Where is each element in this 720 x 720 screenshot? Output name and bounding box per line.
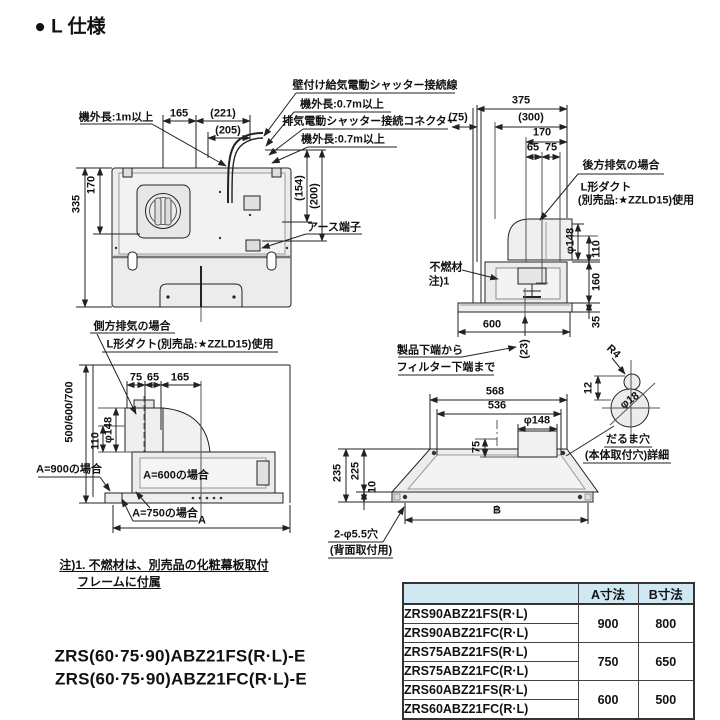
label-case-a900: A=900の場合 xyxy=(36,465,102,476)
callout-wall-supply-shutter: 壁付け給気電動シャッター接続線 xyxy=(293,81,458,92)
label-l-duct: L形ダクト xyxy=(581,183,632,194)
dim-205: (205) xyxy=(215,126,241,137)
dim-phi148-left: φ148 xyxy=(104,417,115,443)
b-value: 650 xyxy=(638,643,694,681)
dim-170-front: 170 xyxy=(87,176,98,194)
dim-A: A xyxy=(198,516,206,527)
page-title: ● L 仕様 xyxy=(34,18,105,37)
dim-568: 568 xyxy=(486,387,504,398)
table-header-row: A寸法 B寸法 xyxy=(403,583,694,604)
a-value: 750 xyxy=(578,643,638,681)
dim-110-left: 110 xyxy=(91,432,102,450)
label-note-ref: 注)1 xyxy=(429,277,450,288)
note-line2: フレームに付属 xyxy=(77,576,161,588)
model-cell: ZRS90ABZ21FC(R·L) xyxy=(403,624,578,643)
model-cell: ZRS75ABZ21FS(R·L) xyxy=(403,643,578,662)
model-cell: ZRS60ABZ21FS(R·L) xyxy=(403,681,578,700)
dim-35: 35 xyxy=(592,316,603,328)
label-side-l-duct: L形ダクト(別売品:★ZZLD15)使用 xyxy=(107,340,274,351)
model-number-fs: ZRS(60·75·90)ABZ21FS(R·L)-E xyxy=(55,648,306,665)
label-rear-mount: (背面取付用) xyxy=(330,546,392,557)
table-row: ZRS90ABZ21FS(R·L) 900 800 xyxy=(403,604,694,624)
dim-536: 536 xyxy=(488,401,506,412)
dimension-table: A寸法 B寸法 ZRS90ABZ21FS(R·L) 900 800 ZRS90A… xyxy=(402,582,695,720)
dim-10: 10 xyxy=(368,481,379,493)
dim-23: (23) xyxy=(520,339,531,359)
dim-200: (200) xyxy=(310,183,321,209)
a-value: 600 xyxy=(578,681,638,720)
dim-160: 160 xyxy=(592,273,603,291)
label-case-a750: A=750の場合 xyxy=(132,509,198,520)
dim-235: 235 xyxy=(333,464,344,482)
label-rear-exhaust: 後方排気の場合 xyxy=(583,161,660,172)
dim-B: B xyxy=(493,506,501,517)
dim-375: 375 xyxy=(512,96,530,107)
model-cell: ZRS75ABZ21FC(R·L) xyxy=(403,662,578,681)
label-keyhole: だるま穴 xyxy=(606,435,650,446)
dim-75-paren: (75) xyxy=(448,113,468,124)
a-value: 900 xyxy=(578,604,638,643)
dim-221: (221) xyxy=(210,109,236,120)
model-cell: ZRS90ABZ21FS(R·L) xyxy=(403,604,578,624)
dim-154: (154) xyxy=(295,175,306,201)
dim-phi148-side: φ148 xyxy=(566,228,577,254)
dim-12: 12 xyxy=(584,382,595,394)
header-model xyxy=(403,583,578,604)
dim-phi148-bottom: φ148 xyxy=(524,416,550,427)
header-a: A寸法 xyxy=(578,583,638,604)
label-cord-length: 機外長:1m以上 xyxy=(79,113,154,124)
dim-335: 335 xyxy=(72,195,83,213)
dim-165: 165 xyxy=(170,109,188,120)
label-side-exhaust: 側方排気の場合 xyxy=(94,322,171,333)
note-line1: 注)1. 不燃材は、別売品の化粧幕板取付 xyxy=(59,559,268,571)
dim-75-bottom: 75 xyxy=(472,441,483,453)
label-case-a600: A=600の場合 xyxy=(143,471,209,482)
dim-75: 75 xyxy=(545,143,557,154)
label-keyhole-detail: (本体取付穴)詳細 xyxy=(585,451,669,462)
label-earth-terminal: アース端子 xyxy=(307,223,361,234)
label-mount-holes: 2-φ5.5穴 xyxy=(334,530,378,541)
header-b: B寸法 xyxy=(638,583,694,604)
callout-exhaust-shutter-connector: 排気電動シャッター接続コネクター xyxy=(282,117,458,128)
dim-75-left: 75 xyxy=(130,373,142,384)
b-value: 800 xyxy=(638,604,694,643)
dim-300: (300) xyxy=(518,113,544,124)
dim-165-left: 165 xyxy=(171,373,189,384)
table-row: ZRS75ABZ21FS(R·L) 750 650 xyxy=(403,643,694,662)
spec-sheet: ● L 仕様 壁付け給気電動シャッター接続線 機外長:0.7m以上 排気電動シャ… xyxy=(0,0,720,720)
table-row: ZRS60ABZ21FS(R·L) 600 500 xyxy=(403,681,694,700)
dim-height-options: 500/600/700 xyxy=(65,381,76,442)
callout-exhaust-cord-length: 機外長:0.7m以上 xyxy=(301,135,385,146)
dim-170-side: 170 xyxy=(533,128,551,139)
dim-110-side: 110 xyxy=(592,240,603,258)
dim-600: 600 xyxy=(483,320,501,331)
label-noncombustible: 不燃材 xyxy=(430,263,463,274)
label-filter-bottom: フィルター下端まで xyxy=(397,363,496,374)
dim-65-left: 65 xyxy=(147,373,159,384)
model-number-fc: ZRS(60·75·90)ABZ21FC(R·L)-E xyxy=(55,671,307,688)
label-l-duct-option: (別売品:★ZZLD15)使用 xyxy=(578,196,694,207)
dim-65: 65 xyxy=(527,143,539,154)
dim-225: 225 xyxy=(351,462,362,480)
callout-supply-cord-length: 機外長:0.7m以上 xyxy=(300,100,384,111)
model-cell: ZRS60ABZ21FC(R·L) xyxy=(403,700,578,720)
label-product-bottom: 製品下端から xyxy=(397,346,463,357)
b-value: 500 xyxy=(638,681,694,720)
